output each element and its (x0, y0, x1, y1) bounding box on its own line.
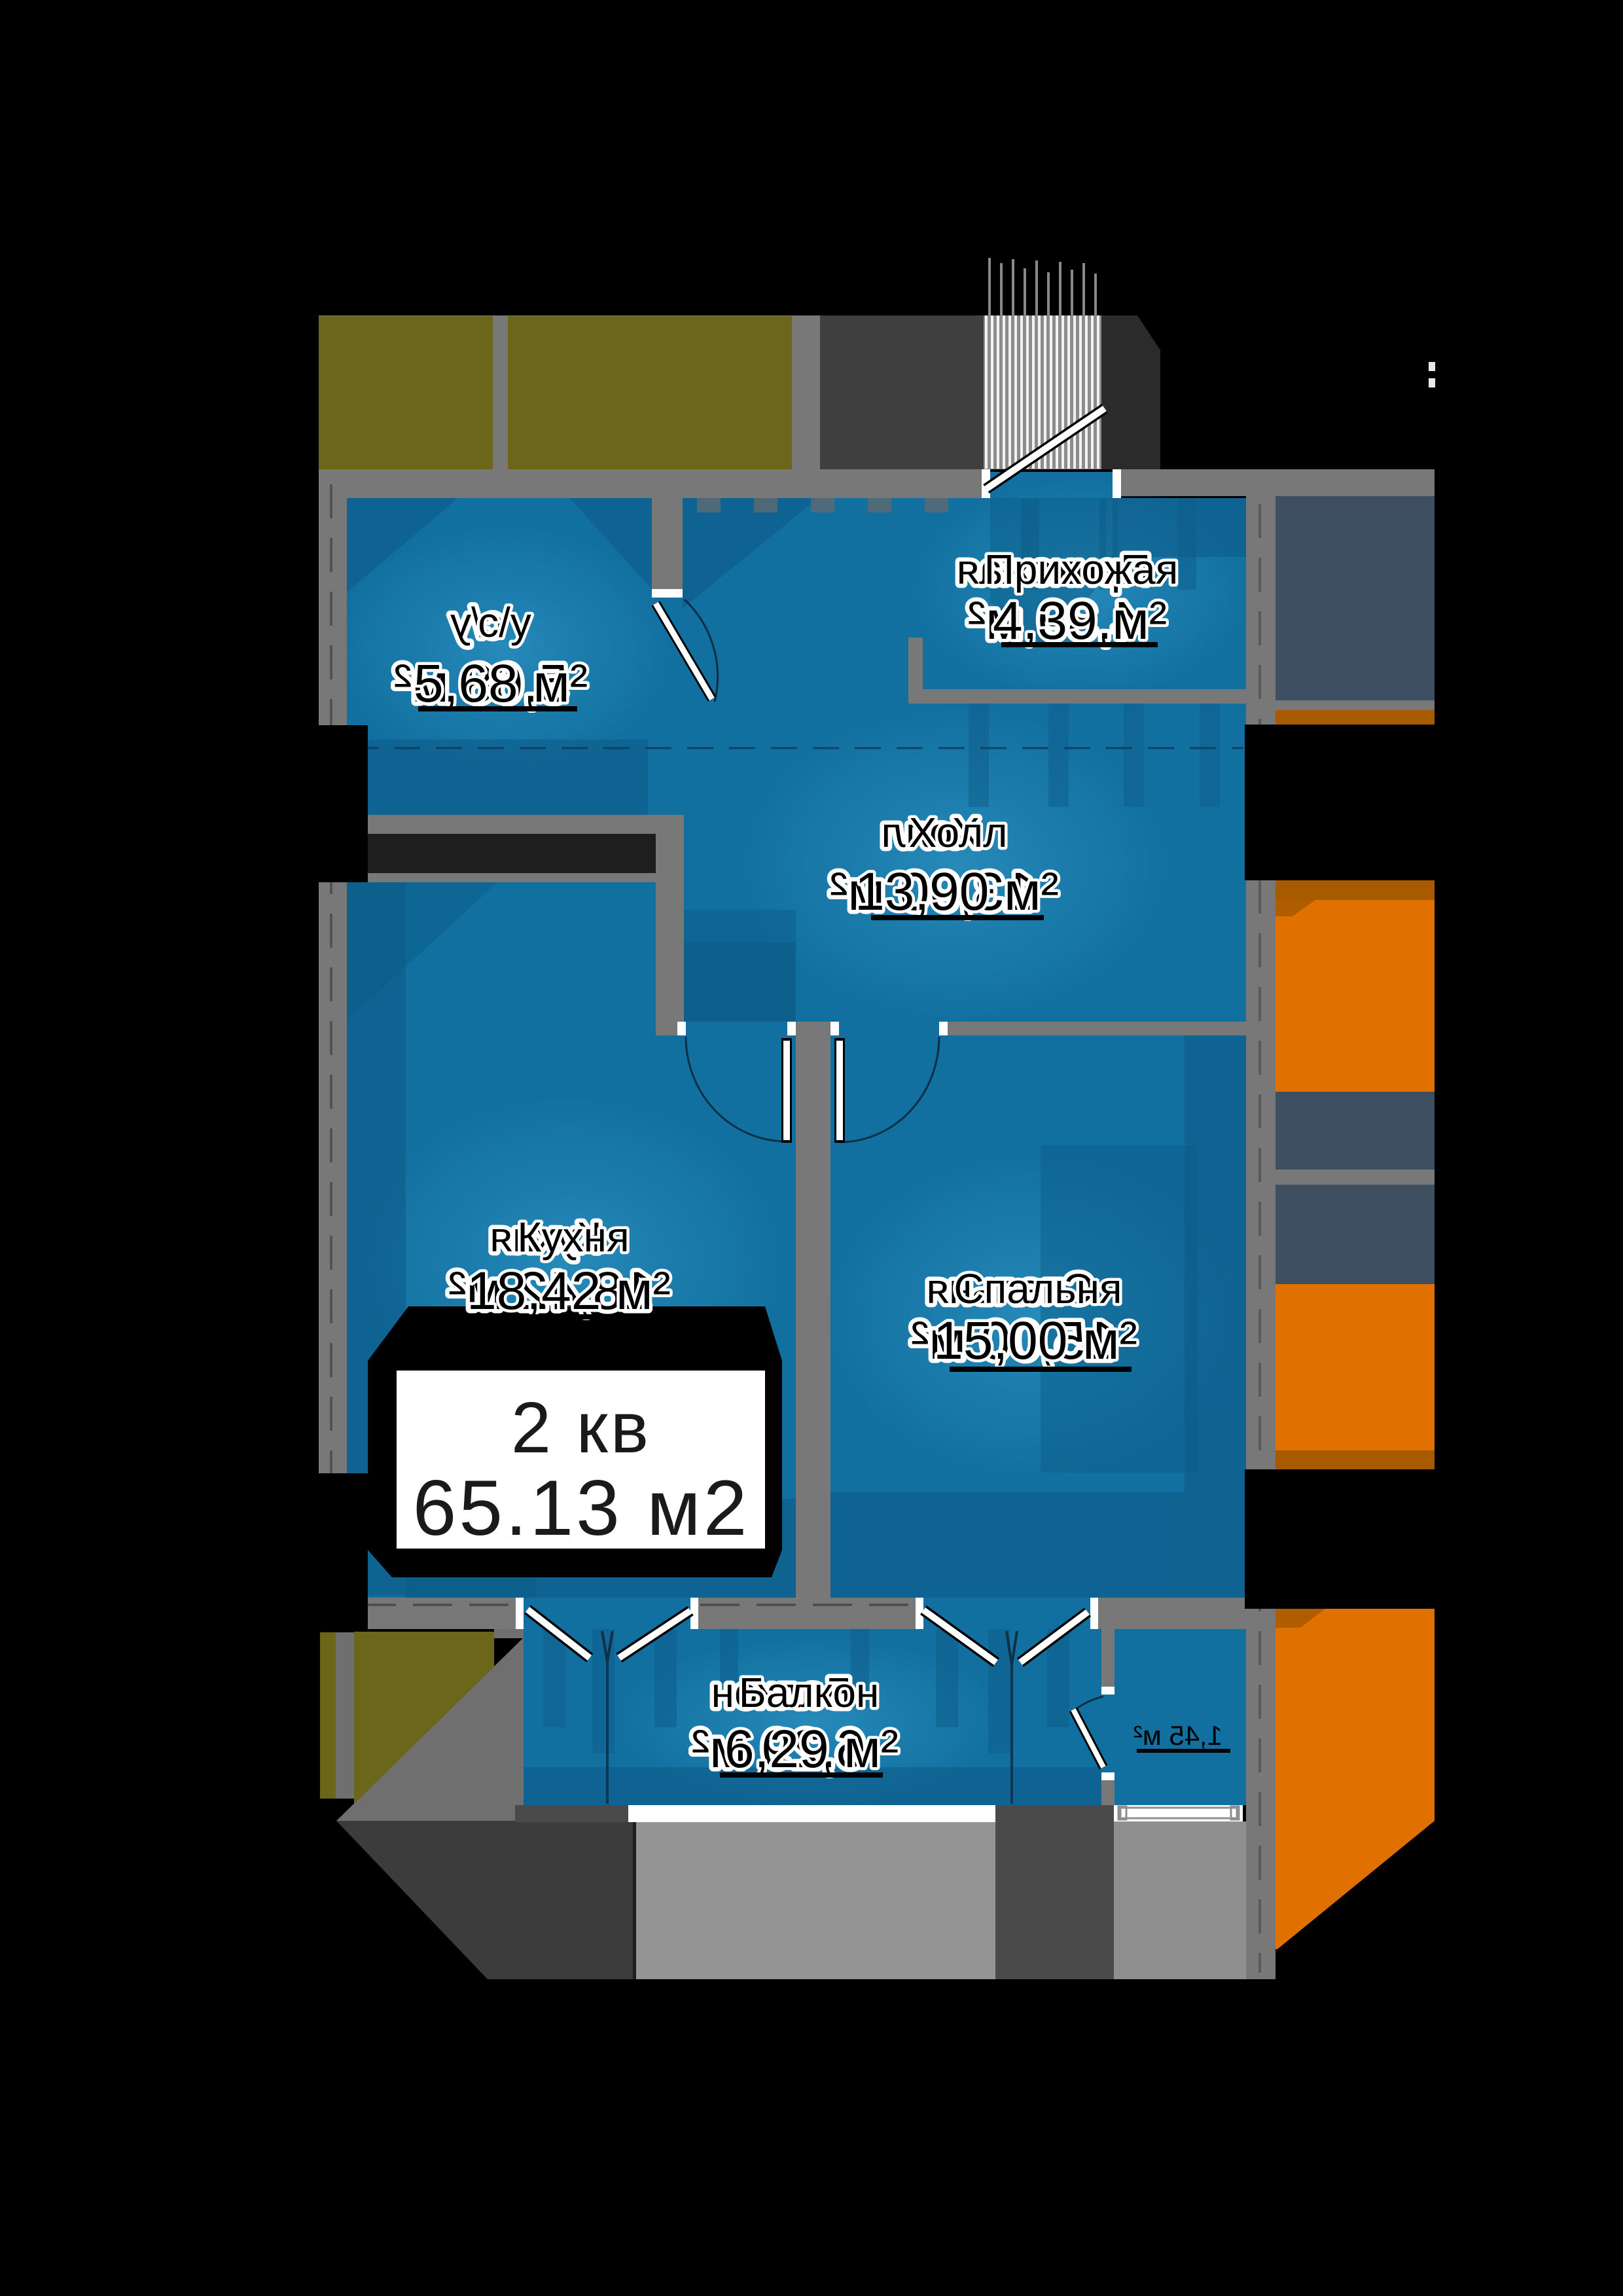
svg-text:5,68 м²: 5,68 м² (414, 654, 588, 713)
svg-text:65.13 м2: 65.13 м2 (413, 1464, 750, 1552)
svg-text:Балкон: Балкон (739, 1669, 880, 1716)
svg-text:Холл: Холл (909, 809, 1008, 856)
svg-text:18,42 м²: 18,42 м² (467, 1261, 671, 1321)
svg-text:1,45 м²: 1,45 м² (1133, 1720, 1222, 1751)
svg-text:2 кв: 2 кв (511, 1388, 651, 1468)
svg-text:Прихожая: Прихожая (984, 546, 1179, 593)
svg-text:Кухня: Кухня (517, 1213, 629, 1261)
svg-text:13,90 м²: 13,90 м² (855, 862, 1059, 922)
svg-text:с/у: с/у (478, 599, 531, 646)
svg-text:Спальня: Спальня (954, 1265, 1122, 1312)
svg-text:6,29 м²: 6,29 м² (724, 1719, 899, 1779)
svg-text:4,39 м²: 4,39 м² (993, 591, 1167, 651)
svg-text:15,00 м²: 15,00 м² (933, 1311, 1137, 1371)
